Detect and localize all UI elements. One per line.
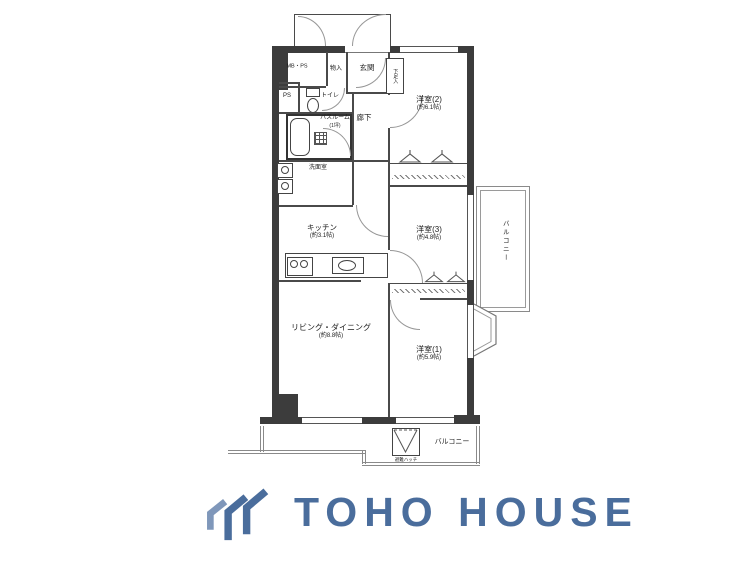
yoshitsu3-size-text: (約4.8帖) — [416, 235, 442, 243]
kitchen-size-text: (約3.1帖) — [307, 233, 337, 241]
partition — [279, 280, 361, 282]
wall-top — [272, 46, 345, 53]
window-right-bay — [467, 305, 474, 358]
room-label-senmen: 洗面室 — [309, 165, 327, 173]
floor-plan-canvas: MB・PS 物入 玄関 下足入 PS トイレ 廊下 バスルーム (1坪) 洗面室… — [0, 0, 750, 563]
wall-right — [467, 280, 474, 305]
brand-name: TOHO HOUSE — [294, 489, 639, 536]
bath-size-text: (1坪) — [320, 123, 350, 130]
room-label-toilet: トイレ — [321, 93, 339, 101]
yoshitsu2-label-text: 洋室(2) — [416, 95, 442, 104]
kitchen-label-text: キッチン — [307, 223, 337, 232]
basin-bowl — [281, 182, 289, 190]
closet-sliding-door — [392, 175, 465, 179]
window-top — [400, 46, 458, 53]
hanger-icon — [446, 271, 466, 283]
wall-left — [272, 46, 279, 424]
label-evacuation-hatch: 避難ハッチ — [395, 457, 418, 463]
room-label-mbps: MB・PS — [286, 63, 307, 70]
room-label-living: リビング・ダイニング (約8.8帖) — [291, 323, 371, 341]
room-label-ps: PS — [283, 93, 291, 101]
room-label-balcony-bottom: バルコニー — [435, 437, 470, 446]
window-bottom-yoshitsu1 — [396, 417, 454, 424]
closet-line — [390, 163, 467, 164]
wall-bottom — [454, 415, 480, 424]
bay-window — [474, 298, 508, 362]
hanger-icon — [398, 150, 422, 163]
partition — [326, 52, 328, 86]
room-label-kitchen: キッチン (約3.1帖) — [307, 223, 337, 241]
chevron-house-icon — [200, 474, 274, 550]
entry-door-arc — [352, 14, 386, 46]
room-label-yoshitsu1: 洋室(1) (約5.9帖) — [416, 345, 442, 363]
brand-logo: TOHO HOUSE — [200, 472, 639, 552]
room-label-rouka: 廊下 — [357, 113, 372, 123]
balcony-bottom-rail — [228, 450, 366, 454]
wall-top — [390, 46, 400, 53]
room-label-bath: バスルーム (1坪) — [320, 115, 350, 129]
bathtub — [290, 118, 310, 156]
stove-burner — [300, 260, 308, 268]
stove-burner — [290, 260, 298, 268]
partition — [279, 160, 389, 162]
hanger-icon — [424, 271, 444, 283]
door-arc-yoshitsu3 — [390, 250, 423, 283]
partition — [346, 52, 348, 92]
living-label-text: リビング・ダイニング — [291, 323, 371, 332]
room-label-balcony-right: バルコニー — [500, 220, 508, 263]
bath-label-text: バスルーム — [320, 115, 350, 121]
door-arc-kitchen — [356, 205, 388, 237]
sink-bowl — [338, 260, 356, 271]
closet-line — [390, 283, 467, 284]
vestibule-line — [294, 14, 295, 46]
yoshitsu3-label-text: 洋室(3) — [416, 225, 442, 234]
partition — [388, 128, 390, 250]
room-label-yoshitsu2: 洋室(2) (約6.1帖) — [416, 95, 442, 113]
yoshitsu2-size-text: (約6.1帖) — [416, 105, 442, 113]
wall-bottom — [260, 417, 302, 424]
toilet-bowl — [307, 98, 319, 113]
window-bottom-living — [302, 417, 362, 424]
balcony-bottom-rail — [476, 426, 480, 464]
closet-sliding-door — [392, 289, 465, 293]
living-size-text: (約8.8帖) — [291, 333, 371, 341]
room-label-gesokuire: 下足入 — [392, 69, 399, 84]
yoshitsu1-size-text: (約5.9帖) — [416, 355, 442, 363]
wall-bottom — [362, 417, 396, 424]
entry-door-arc — [298, 16, 326, 46]
room-label-genkan: 玄関 — [360, 63, 375, 73]
evacuation-hatch-icon — [392, 428, 420, 456]
vestibule-line — [390, 14, 391, 46]
toilet-tank — [306, 88, 320, 97]
door-arc-yoshitsu1 — [390, 300, 420, 330]
wall-right — [467, 46, 474, 195]
balcony-bottom-rail — [260, 426, 264, 452]
hanger-icon — [430, 150, 454, 163]
washer-drum — [281, 166, 289, 174]
room-label-monoire: 物入 — [330, 66, 342, 74]
partition — [352, 92, 354, 205]
balcony-bottom-rail — [362, 462, 480, 466]
window-right-yoshitsu3 — [467, 195, 474, 280]
entry-opening — [345, 46, 390, 53]
closet-line — [390, 185, 467, 187]
closet-line — [420, 298, 467, 300]
partition — [279, 82, 299, 84]
room-label-yoshitsu3: 洋室(3) (約4.8帖) — [416, 225, 442, 243]
yoshitsu1-label-text: 洋室(1) — [416, 345, 442, 354]
partition — [298, 82, 300, 112]
partition — [279, 205, 353, 207]
